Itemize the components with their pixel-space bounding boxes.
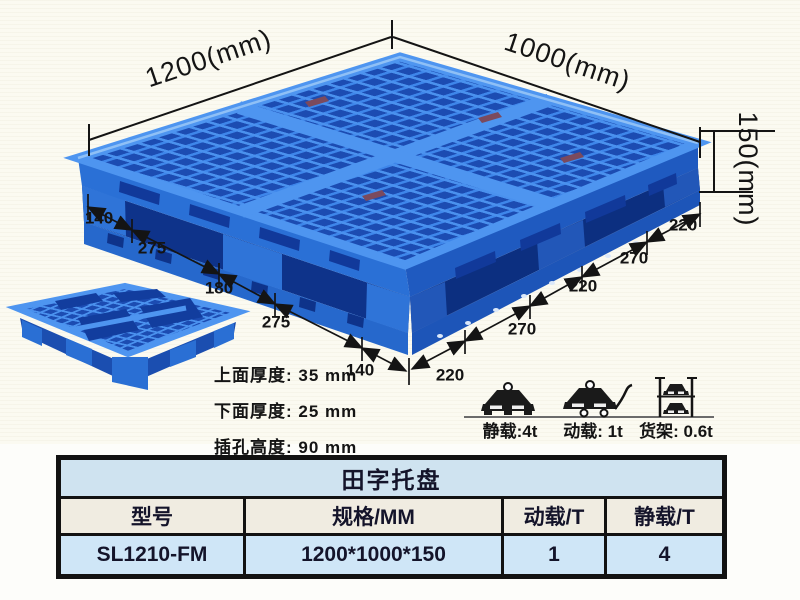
dim-label: 275 [138,238,166,257]
cell-model: SL1210-FM [59,535,245,577]
rack-load-icon [655,377,697,417]
cell-static-load: 4 [606,535,725,577]
dim-label: 220 [669,215,697,234]
bottom-thickness-note: 下面厚度: 25 mm [214,397,357,422]
cell-spec-mm: 1200*1000*150 [245,535,503,577]
header-model: 型号 [59,498,245,535]
spec-table-data-row: SL1210-FM 1200*1000*150 1 4 [59,535,725,577]
dim-label: 220 [569,276,597,295]
static-load-icon [481,383,535,415]
spec-table-title: 田字托盘 [59,458,725,498]
header-dynamic-load: 动载/T [503,498,606,535]
dim-label: 275 [262,312,290,331]
width-dimension-label: 1000(mm) [501,26,635,96]
top-thickness-note: 上面厚度: 35 mm [214,361,357,386]
static-load-label: 静载:4t [483,421,538,441]
dim-label: 180 [205,278,233,297]
load-ratings: 静载:4t 动载: 1t 货架: 0.6t [464,377,714,441]
dim-label: 270 [508,319,536,338]
dim-label: 270 [620,248,648,267]
product-sheet: 1200(mm) 1000(mm) 150(mm) 140 275 180 27… [0,0,800,600]
dim-label: 220 [436,365,464,384]
spec-table-header-row: 型号 规格/MM 动载/T 静载/T [59,498,725,535]
height-dimension-label: 150(mm) [733,111,763,226]
spec-table-title-row: 田字托盘 [59,458,725,498]
dynamic-load-icon [563,381,632,417]
cell-dynamic-load: 1 [503,535,606,577]
header-static-load: 静载/T [606,498,725,535]
spec-table: 田字托盘 型号 规格/MM 动载/T 静载/T SL1210-FM 1200*1… [56,455,727,579]
header-spec-mm: 规格/MM [245,498,503,535]
rack-load-label: 货架: 0.6t [639,421,713,441]
dynamic-load-label: 动载: 1t [563,421,623,441]
small-pallet-illustration [16,286,240,390]
dim-label: 140 [85,208,113,227]
